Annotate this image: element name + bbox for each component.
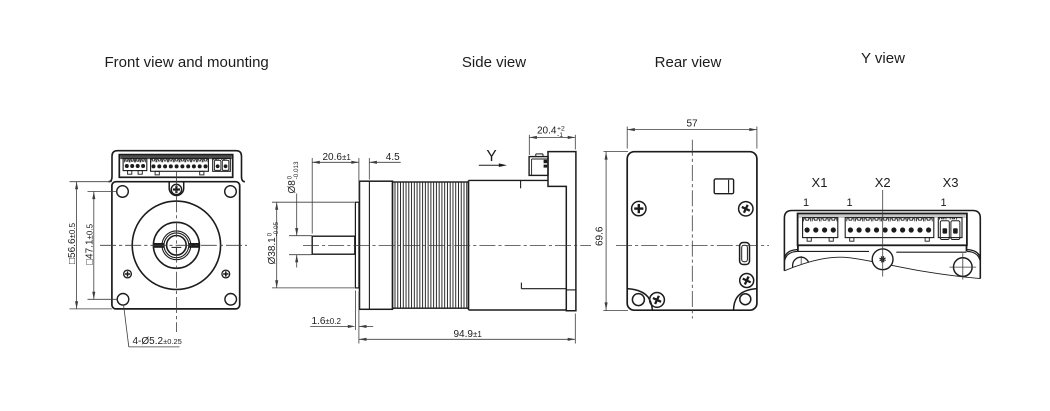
svg-text:X2: X2	[875, 175, 891, 190]
svg-text:□56.6±0.5: □56.6±0.5	[67, 222, 78, 264]
svg-text:1: 1	[846, 197, 852, 209]
svg-text:1: 1	[803, 197, 809, 209]
svg-text:1.6±0.2: 1.6±0.2	[312, 316, 342, 327]
svg-text:Rear view: Rear view	[655, 54, 722, 71]
svg-text:57: 57	[686, 118, 698, 129]
svg-text:Y: Y	[486, 148, 496, 165]
svg-text:-1: -1	[557, 132, 563, 139]
svg-text:-0.013: -0.013	[293, 161, 300, 179]
svg-text:X3: X3	[943, 175, 959, 190]
svg-text:-0.05: -0.05	[273, 221, 280, 236]
svg-text:Y view: Y view	[861, 50, 905, 67]
svg-text:X1: X1	[812, 175, 828, 190]
svg-text:94.9±1: 94.9±1	[454, 329, 483, 340]
svg-text:Ø8: Ø8	[287, 180, 298, 194]
svg-text:4-Ø5.2±0.25: 4-Ø5.2±0.25	[133, 336, 182, 347]
svg-text:□47.1±0.5: □47.1±0.5	[84, 223, 95, 265]
svg-text:20.4: 20.4	[537, 126, 557, 137]
svg-text:69.6: 69.6	[594, 226, 605, 246]
svg-text:1: 1	[940, 197, 946, 209]
svg-text:20.6±1: 20.6±1	[323, 152, 352, 163]
svg-text:Ø38.1: Ø38.1	[267, 237, 278, 265]
svg-text:Side view: Side view	[462, 54, 526, 71]
svg-text:4.5: 4.5	[386, 152, 400, 163]
svg-text:Front view and mounting: Front view and mounting	[105, 54, 269, 71]
